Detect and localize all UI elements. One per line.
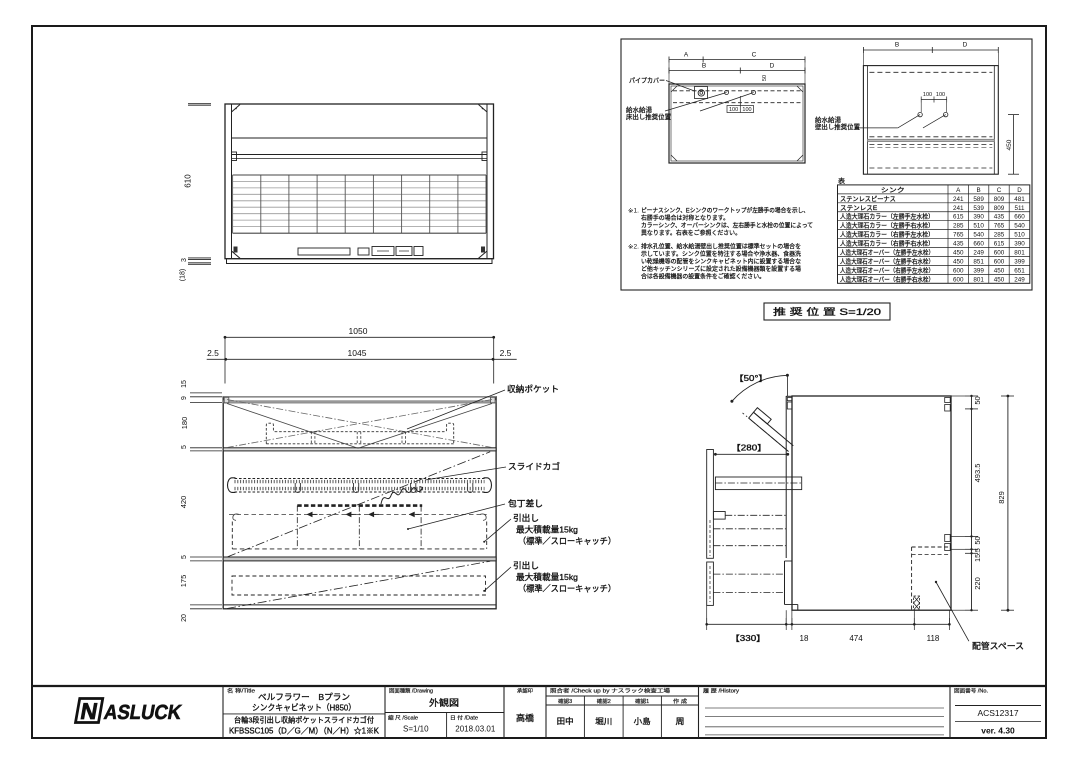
svg-text:ベルフラワー Bプラン: ベルフラワー Bプラン	[258, 692, 350, 702]
svg-text:2.5: 2.5	[500, 348, 512, 358]
svg-text:474: 474	[849, 634, 863, 643]
svg-text:合は各設備機器の設置条件をご確認ください。: 合は各設備機器の設置条件をご確認ください。	[641, 273, 765, 281]
svg-text:9: 9	[181, 396, 188, 400]
svg-text:D: D	[963, 42, 968, 49]
svg-text:確認2: 確認2	[597, 698, 611, 705]
svg-text:511: 511	[1014, 205, 1025, 212]
svg-text:1050: 1050	[349, 326, 368, 336]
svg-text:610: 610	[184, 174, 193, 188]
svg-text:765: 765	[994, 223, 1005, 230]
svg-text:小島: 小島	[634, 716, 651, 726]
svg-text:615: 615	[994, 241, 1005, 248]
svg-text:推 奨 位 置 S=1/20: 推 奨 位 置 S=1/20	[773, 306, 881, 317]
svg-text:118: 118	[927, 634, 940, 643]
svg-text:【280】: 【280】	[731, 444, 767, 453]
svg-text:450: 450	[994, 267, 1005, 274]
svg-text:C: C	[752, 52, 757, 59]
svg-text:壁出し推奨位置: 壁出し推奨位置	[815, 122, 860, 131]
svg-text:493.5: 493.5	[973, 464, 982, 483]
svg-text:809: 809	[994, 205, 1005, 212]
svg-text:600: 600	[994, 258, 1005, 265]
svg-text:18: 18	[800, 634, 809, 643]
svg-text:390: 390	[973, 214, 984, 221]
svg-text:示しています。シンク位置を特注する場合や浄水器、食器洗: 示しています。シンク位置を特注する場合や浄水器、食器洗	[641, 250, 802, 258]
svg-text:堀川: 堀川	[595, 717, 612, 726]
svg-text:確認3: 確認3	[558, 698, 572, 705]
svg-text:最大積載量15kg: 最大積載量15kg	[516, 525, 578, 535]
svg-text:ど他キッチンシリーズに設定された設備機器類を設置する場: ど他キッチンシリーズに設定された設備機器類を設置する場	[641, 265, 801, 273]
svg-text:パイプカバー: パイプカバー	[629, 77, 665, 85]
svg-text:ASLUCK: ASLUCK	[102, 701, 183, 724]
svg-text:100: 100	[923, 92, 932, 98]
svg-text:809: 809	[994, 196, 1005, 203]
svg-text:作 成: 作 成	[673, 698, 687, 705]
svg-text:100: 100	[729, 107, 738, 113]
svg-text:(18): (18)	[180, 269, 187, 281]
svg-text:（標準／スローキャッチ）: （標準／スローキャッチ）	[518, 536, 616, 546]
svg-text:図面番号 /No.: 図面番号 /No.	[954, 688, 988, 695]
svg-text:右勝手の場合は対称となります。: 右勝手の場合は対称となります。	[641, 214, 729, 222]
svg-text:包丁差し: 包丁差し	[508, 499, 543, 509]
svg-text:給水給湯: 給水給湯	[815, 115, 842, 124]
svg-text:801: 801	[1014, 250, 1025, 257]
svg-text:床出し推奨位置: 床出し推奨位置	[626, 112, 671, 121]
svg-text:人造大理石カラー（右勝手右水栓）: 人造大理石カラー（右勝手右水栓）	[840, 239, 934, 248]
svg-text:（標準／スローキャッチ）: （標準／スローキャッチ）	[518, 584, 616, 594]
svg-text:台輪3段引出し収納ポケットスライドカゴ付: 台輪3段引出し収納ポケットスライドカゴ付	[234, 715, 374, 725]
svg-text:B: B	[702, 63, 706, 70]
svg-text:20: 20	[181, 614, 188, 622]
svg-text:引出し: 引出し	[513, 561, 539, 571]
svg-text:5: 5	[181, 555, 188, 559]
svg-text:異なります。右表をご参照ください。: 異なります。右表をご参照ください。	[641, 229, 741, 237]
svg-text:縮 尺 /Scale: 縮 尺 /Scale	[388, 715, 418, 722]
svg-text:人造大理石オーバー（左勝手右水栓）: 人造大理石オーバー（左勝手右水栓）	[840, 256, 934, 265]
svg-text:名 称/Title: 名 称/Title	[227, 688, 255, 695]
svg-text:B: B	[976, 187, 980, 194]
svg-text:435: 435	[994, 214, 1005, 221]
svg-text:285: 285	[953, 223, 964, 230]
svg-text:600: 600	[953, 267, 964, 274]
svg-text:3: 3	[181, 258, 188, 262]
svg-text:B: B	[895, 42, 899, 49]
svg-text:175: 175	[179, 575, 188, 588]
svg-text:600: 600	[953, 276, 964, 283]
svg-text:C: C	[997, 187, 1002, 194]
svg-text:450: 450	[953, 258, 964, 265]
svg-text:ピーナスシンク、Eシンクのワークトップが左勝手の場合を示し、: ピーナスシンク、Eシンクのワークトップが左勝手の場合を示し、	[641, 207, 809, 215]
svg-text:589: 589	[973, 196, 984, 203]
svg-text:スライドカゴ: スライドカゴ	[508, 462, 560, 472]
svg-text:100: 100	[936, 92, 945, 98]
svg-text:人造大理石オーバー（右勝手左水栓）: 人造大理石オーバー（右勝手左水栓）	[840, 265, 934, 274]
svg-text:A: A	[684, 52, 689, 59]
svg-text:390: 390	[1014, 241, 1025, 248]
svg-text:1045: 1045	[348, 348, 367, 358]
svg-text:450: 450	[953, 250, 964, 257]
svg-text:851: 851	[973, 258, 984, 265]
svg-text:5: 5	[181, 445, 188, 449]
svg-text:【50°】: 【50°】	[734, 374, 768, 383]
svg-text:表: 表	[838, 176, 846, 185]
svg-text:カラーシンク、オーバーシンクは、左右勝手と水栓の位置によって: カラーシンク、オーバーシンクは、左右勝手と水栓の位置によって	[641, 222, 813, 230]
svg-text:D: D	[1017, 187, 1022, 194]
svg-text:照合者 /Check up by ナスラック検査工場: 照合者 /Check up by ナスラック検査工場	[550, 688, 670, 695]
svg-text:排水孔位置、給水給湯壁出し推奨位置は標準セットの場合を: 排水孔位置、給水給湯壁出し推奨位置は標準セットの場合を	[641, 243, 801, 251]
svg-text:540: 540	[1014, 223, 1025, 230]
svg-text:399: 399	[973, 267, 984, 274]
svg-text:510: 510	[973, 223, 984, 230]
svg-text:249: 249	[973, 250, 984, 257]
svg-text:241: 241	[953, 196, 964, 203]
svg-text:ステンレスE: ステンレスE	[840, 204, 877, 212]
svg-text:765: 765	[953, 232, 964, 239]
svg-text:【330】: 【330】	[730, 634, 766, 643]
svg-text:引出し: 引出し	[513, 513, 539, 523]
svg-text:450: 450	[1006, 139, 1013, 150]
svg-text:田中: 田中	[557, 716, 574, 726]
svg-text:シンクキャビネット（H850）: シンクキャビネット（H850）	[252, 703, 356, 713]
svg-text:50: 50	[762, 75, 768, 81]
svg-text:図面種類 /Drawing: 図面種類 /Drawing	[389, 688, 433, 695]
svg-text:S=1/10: S=1/10	[403, 725, 429, 734]
svg-text:D: D	[770, 63, 775, 70]
svg-text:2018.03.01: 2018.03.01	[455, 725, 496, 734]
svg-text:615: 615	[953, 214, 964, 221]
svg-text:確認1: 確認1	[635, 698, 649, 705]
svg-text:540: 540	[973, 232, 984, 239]
svg-text:人造大理石カラー（左勝手左水栓）: 人造大理石カラー（左勝手左水栓）	[840, 212, 934, 221]
svg-text:人造大理石オーバー（左勝手左水栓）: 人造大理石オーバー（左勝手左水栓）	[840, 248, 934, 257]
svg-text:最大積載量15kg: 最大積載量15kg	[516, 572, 578, 582]
svg-text:249: 249	[1014, 276, 1025, 283]
svg-text:100: 100	[742, 107, 751, 113]
svg-text:人造大理石カラー（右勝手左水栓）: 人造大理石カラー（右勝手左水栓）	[840, 230, 934, 239]
svg-text:KFBSSC105（D／G／M）（N／H）☆1※K: KFBSSC105（D／G／M）（N／H）☆1※K	[229, 727, 380, 736]
svg-text:180: 180	[180, 417, 189, 430]
svg-text:給水給湯: 給水給湯	[626, 105, 653, 114]
svg-text:420: 420	[179, 496, 188, 509]
svg-text:収納ポケット: 収納ポケット	[507, 384, 559, 394]
svg-text:399: 399	[1014, 258, 1025, 265]
svg-text:外観図: 外観図	[429, 697, 459, 708]
svg-text:配管スペース: 配管スペース	[972, 641, 1024, 651]
svg-text:人造大理石オーバー（右勝手右水栓）: 人造大理石オーバー（右勝手右水栓）	[840, 274, 934, 283]
svg-text:450: 450	[994, 276, 1005, 283]
svg-text:周: 周	[676, 717, 685, 726]
svg-text:660: 660	[973, 241, 984, 248]
svg-text:履 歴 /History: 履 歴 /History	[703, 689, 740, 695]
svg-text:50: 50	[973, 396, 982, 404]
svg-text:い乾燥機等の配管をシンクキャビネット内に設置する場合な: い乾燥機等の配管をシンクキャビネット内に設置する場合な	[641, 258, 801, 266]
svg-text:※2.: ※2.	[628, 244, 639, 251]
svg-text:シンク: シンク	[881, 186, 905, 194]
svg-text:ver. 4.30: ver. 4.30	[981, 726, 1015, 736]
svg-text:ステンレスピーナス: ステンレスピーナス	[840, 195, 896, 203]
svg-text:600: 600	[994, 250, 1005, 257]
svg-text:539: 539	[973, 205, 984, 212]
svg-text:15: 15	[181, 380, 188, 388]
svg-text:241: 241	[953, 205, 964, 212]
svg-text:651: 651	[1014, 267, 1025, 274]
svg-text:人造大理石カラー（左勝手右水栓）: 人造大理石カラー（左勝手右水栓）	[840, 221, 934, 230]
svg-text:510: 510	[1014, 232, 1025, 239]
svg-text:※1.: ※1.	[628, 208, 639, 215]
svg-text:50: 50	[973, 536, 982, 544]
svg-text:285: 285	[994, 232, 1005, 239]
svg-text:435: 435	[953, 241, 964, 248]
svg-text:承認印: 承認印	[517, 688, 533, 695]
svg-text:481: 481	[1014, 196, 1025, 203]
svg-text:ACS12317: ACS12317	[977, 708, 1018, 718]
svg-text:660: 660	[1014, 214, 1025, 221]
svg-text:801: 801	[973, 276, 984, 283]
svg-text:220: 220	[973, 577, 982, 590]
svg-text:高橋: 高橋	[516, 713, 535, 723]
svg-text:15.5: 15.5	[975, 548, 982, 562]
svg-text:2.5: 2.5	[207, 348, 219, 358]
svg-text:日 付 /Date: 日 付 /Date	[450, 715, 478, 722]
svg-text:829: 829	[997, 491, 1006, 504]
